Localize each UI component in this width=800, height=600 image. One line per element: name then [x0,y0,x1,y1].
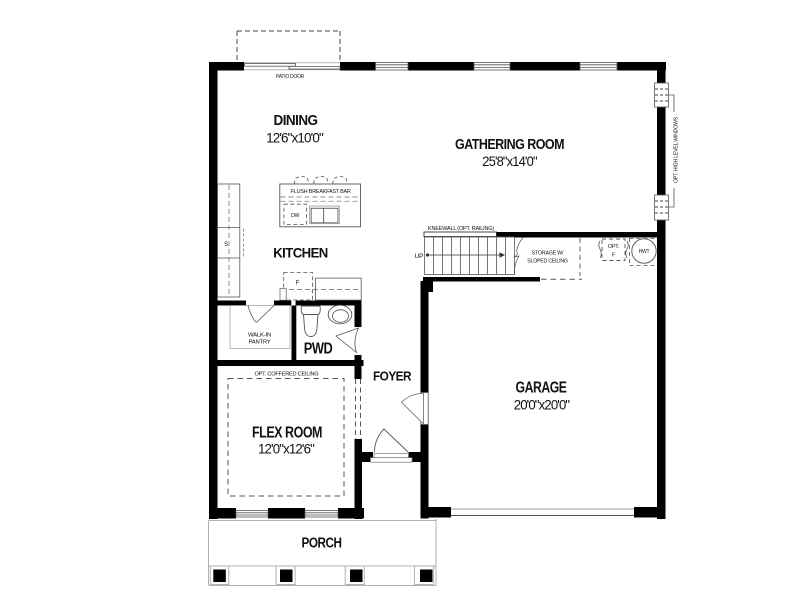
svg-text:OPT.: OPT. [608,244,619,250]
svg-text:S: S [224,242,228,248]
svg-text:GATHERING ROOM: GATHERING ROOM [455,137,564,153]
svg-text:FOYER: FOYER [373,369,412,384]
svg-text:20'0"x20'0": 20'0"x20'0" [514,397,570,413]
svg-text:DINING: DINING [274,112,318,129]
svg-text:SLOPED CEILING: SLOPED CEILING [527,259,568,265]
svg-text:UP: UP [415,253,424,260]
svg-text:PWD: PWD [304,341,333,358]
svg-text:OPT. HIGH LEVEL WINDOWS: OPT. HIGH LEVEL WINDOWS [674,117,680,183]
svg-text:DW: DW [291,213,300,219]
svg-text:KITCHEN: KITCHEN [273,246,328,261]
svg-text:PANTRY: PANTRY [249,340,272,346]
svg-text:25'8"x14'0": 25'8"x14'0" [482,153,537,169]
svg-text:HWT: HWT [639,249,650,255]
svg-text:FLEX ROOM: FLEX ROOM [252,425,322,442]
svg-text:PORCH: PORCH [302,536,342,552]
svg-text:STORAGE W/: STORAGE W/ [532,251,564,257]
svg-text:GARAGE: GARAGE [516,380,568,397]
svg-text:F: F [296,281,300,287]
svg-text:KNEEWALL (OPT. RAILING): KNEEWALL (OPT. RAILING) [428,226,494,232]
svg-text:WALK-IN: WALK-IN [248,333,271,339]
svg-text:12'6"x10'0": 12'6"x10'0" [266,130,324,146]
svg-text:12'0"x12'6": 12'0"x12'6" [258,441,315,457]
svg-text:FLUSH BREAKFAST BAR: FLUSH BREAKFAST BAR [291,189,351,195]
svg-text:OPT. COFFERED CEILING: OPT. COFFERED CEILING [255,372,319,378]
svg-text:PATIO DOOR: PATIO DOOR [276,74,304,80]
